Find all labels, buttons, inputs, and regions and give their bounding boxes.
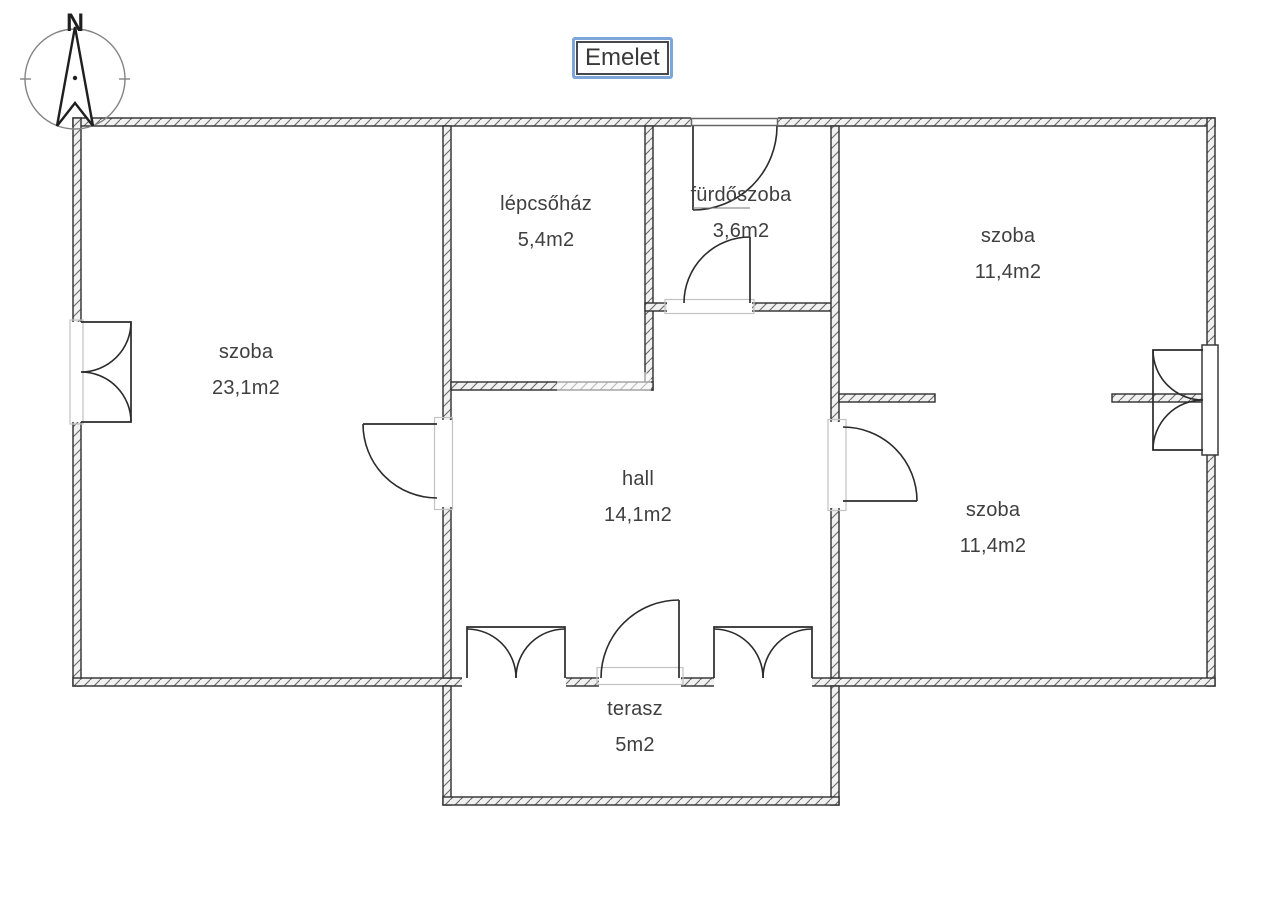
compass: N (20, 9, 130, 129)
room-name: terasz (535, 691, 735, 727)
page-title: Emelet (576, 41, 669, 75)
wall-segment (73, 118, 1215, 126)
wall-opening (714, 677, 812, 688)
title-box: Emelet (572, 37, 673, 79)
room-area: 14,1m2 (538, 497, 738, 533)
wall-opening (667, 302, 752, 313)
room-name: szoba (908, 218, 1108, 254)
door-swing-arc (843, 427, 917, 501)
room-area: 11,4m2 (908, 254, 1108, 290)
room-label-szoba-bottom-right: szoba 11,4m2 (893, 492, 1093, 564)
room-name: szoba (146, 334, 346, 370)
watermark (557, 372, 651, 397)
room-label-terasz: terasz 5m2 (535, 691, 735, 763)
compass-center-dot (73, 76, 77, 80)
window-swing-arc (714, 629, 763, 678)
wall-opening (599, 677, 681, 688)
window-frame (1202, 345, 1218, 455)
window-swing-arc (1153, 350, 1203, 400)
room-area: 5,4m2 (446, 222, 646, 258)
door-swing-arc (601, 600, 679, 678)
room-area: 11,4m2 (893, 528, 1093, 564)
window-swing-arc (467, 629, 516, 678)
room-label-szoba-left: szoba 23,1m2 (146, 334, 346, 406)
window-frame (692, 119, 778, 126)
wall-opening (442, 420, 453, 507)
door-swing-arc (363, 424, 437, 498)
wall-opening (830, 422, 841, 508)
floor-plan-drawing: N (0, 0, 1280, 900)
room-label-hall: hall 14,1m2 (538, 461, 738, 533)
room-label-lepcsohaz: lépcsőház 5,4m2 (446, 186, 646, 258)
wall-segment (645, 126, 653, 390)
room-name: lépcsőház (446, 186, 646, 222)
room-name: szoba (893, 492, 1093, 528)
wall-segment (839, 394, 935, 402)
window-swing-arc (1153, 400, 1203, 450)
room-area: 3,6m2 (641, 213, 841, 249)
room-name: hall (538, 461, 738, 497)
wall-segment (443, 686, 451, 805)
room-name: fürdőszoba (641, 177, 841, 213)
room-label-szoba-top-right: szoba 11,4m2 (908, 218, 1108, 290)
window-swing-arc (763, 629, 812, 678)
north-label: N (66, 9, 84, 37)
window-swing-arc (81, 372, 131, 422)
wall-segment (831, 686, 839, 805)
window-swing-arc (516, 629, 565, 678)
wall-segment (443, 797, 839, 805)
floor-plan: N szoba 23,1m2 lépcsőház 5,4m2 fürdőszob… (0, 0, 1280, 900)
wall-opening (72, 322, 83, 422)
window-swing-arc (81, 322, 131, 372)
room-area: 5m2 (535, 727, 735, 763)
wall-opening (462, 677, 566, 688)
room-area: 23,1m2 (146, 370, 346, 406)
room-label-furdoszoba: fürdőszoba 3,6m2 (641, 177, 841, 249)
